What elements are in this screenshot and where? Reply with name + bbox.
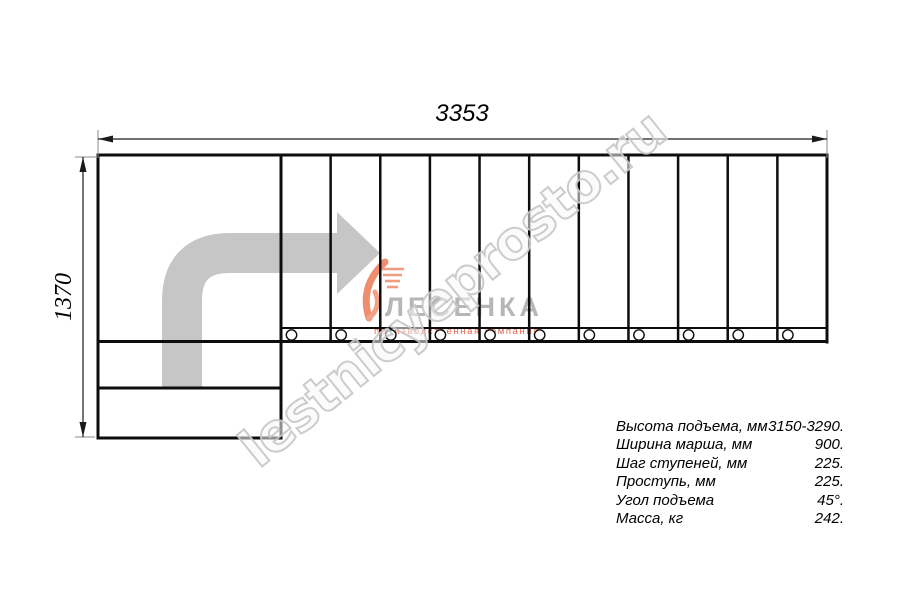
spec-label: Ширина марша, мм: [616, 436, 752, 454]
staircase-plan: ЛЕСЕНКА производственная компания: [0, 0, 900, 600]
dim-arrow-top-icon: [80, 157, 87, 172]
logo-name: ЛЕСЕНКА: [378, 292, 550, 322]
height-dimension: [75, 157, 97, 437]
tread-circle: [534, 330, 544, 340]
logo: ЛЕСЕНКА производственная компания: [0, 0, 900, 600]
tread-circle: [386, 330, 396, 340]
tread-circle: [683, 330, 693, 340]
spec-value: 3150-3290.: [768, 418, 844, 436]
spec-label: Проступь, мм: [616, 473, 716, 491]
specs-table: Высота подъема, мм 3150-3290. Ширина мар…: [616, 418, 844, 528]
tread-circle: [733, 330, 743, 340]
plan-outline: [97, 154, 829, 440]
spec-label: Шаг ступеней, мм: [616, 455, 747, 473]
dim-arrow-right-icon: [812, 136, 827, 143]
step-lines: [331, 155, 778, 342]
spec-row: Высота подъема, мм 3150-3290.: [616, 418, 844, 436]
tread-circle: [584, 330, 594, 340]
logo-swoosh-icon: [347, 254, 409, 332]
width-dimension: [98, 130, 827, 158]
spec-value: 45°.: [817, 492, 844, 510]
arrowhead-icon: [337, 212, 380, 294]
spec-label: Угол подъема: [616, 492, 714, 510]
spec-row: Масса, кг 242.: [616, 510, 844, 528]
spec-value: 242.: [815, 510, 844, 528]
logo-tagline: производственная компания: [348, 326, 566, 338]
tread-circle: [485, 330, 495, 340]
spec-row: Ширина марша, мм 900.: [616, 436, 844, 454]
width-dimension-label: 3353: [422, 101, 502, 127]
spec-row: Шаг ступеней, мм 225.: [616, 455, 844, 473]
tread-circle: [336, 330, 346, 340]
direction-arrow-layer: [0, 0, 900, 600]
cad-lines-layer: [0, 0, 900, 600]
spec-value: 225.: [815, 473, 844, 491]
spec-label: Масса, кг: [616, 510, 683, 528]
spec-value: 900.: [815, 436, 844, 454]
tread-circles: [286, 330, 793, 340]
tread-circle: [783, 330, 793, 340]
dim-arrow-left-icon: [98, 136, 113, 143]
height-dimension-label: 1370: [51, 257, 77, 337]
spec-label: Высота подъема, мм: [616, 418, 768, 436]
spec-value: 225.: [815, 455, 844, 473]
tread-circle: [435, 330, 445, 340]
tread-circle: [286, 330, 296, 340]
watermark-text: lestnicyeprosto.ru: [228, 98, 679, 480]
direction-arrow: [182, 212, 380, 389]
dim-arrow-bottom-icon: [80, 422, 87, 437]
spec-row: Угол подъема 45°.: [616, 492, 844, 510]
spec-row: Проступь, мм 225.: [616, 473, 844, 491]
tread-circle: [634, 330, 644, 340]
